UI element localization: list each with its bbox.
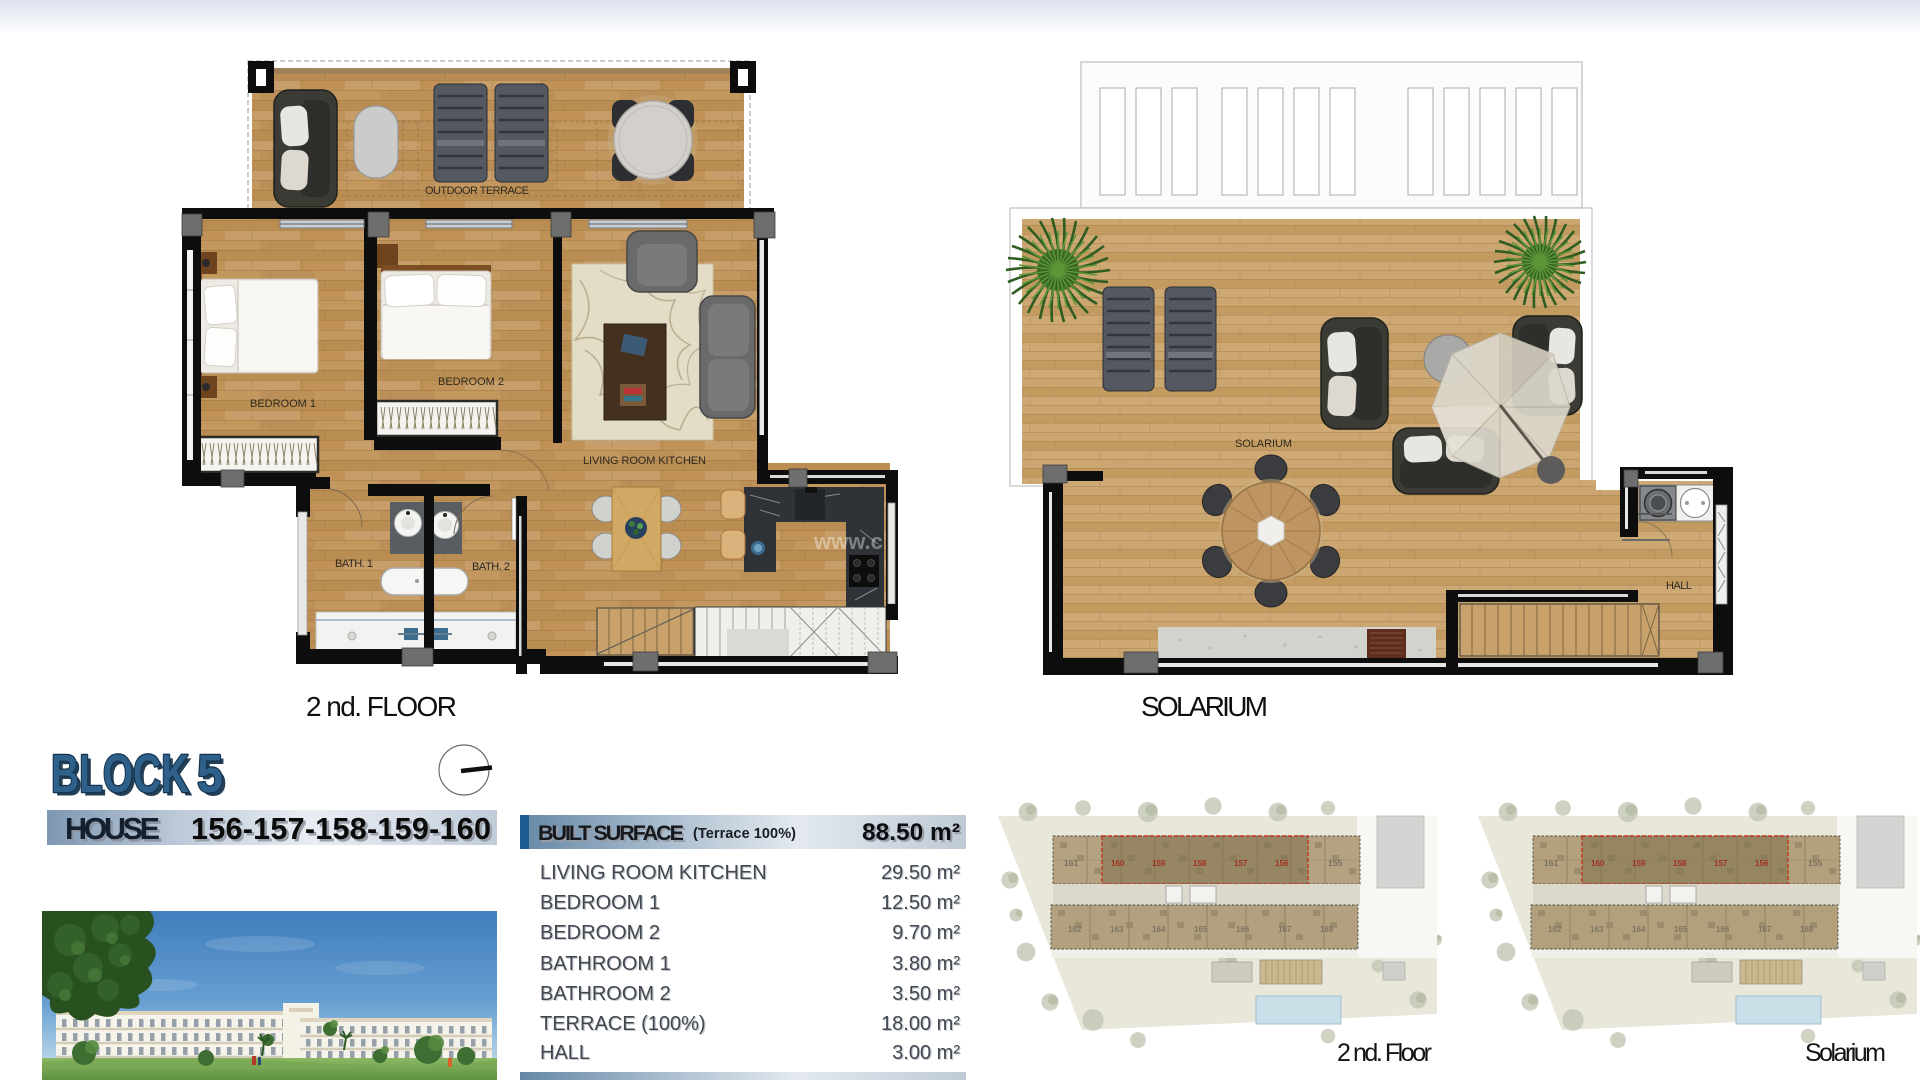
svg-text:LIVING ROOM KITCHEN: LIVING ROOM KITCHEN xyxy=(540,862,767,884)
svg-text:167: 167 xyxy=(1758,925,1772,934)
svg-text:Solarium: Solarium xyxy=(1805,1039,1886,1067)
svg-text:164: 164 xyxy=(1152,925,1166,934)
svg-text:158: 158 xyxy=(1193,859,1207,868)
svg-text:BUILT SURFACE: BUILT SURFACE xyxy=(538,821,684,845)
svg-text:OUTDOOR TERRACE: OUTDOOR TERRACE xyxy=(425,185,529,197)
svg-text:BLOCK: BLOCK xyxy=(51,743,189,804)
svg-text:160: 160 xyxy=(1591,859,1605,868)
svg-text:156: 156 xyxy=(1755,859,1769,868)
svg-text:155: 155 xyxy=(1808,858,1822,868)
svg-text:18.00 m²: 18.00 m² xyxy=(881,1013,960,1035)
svg-text:BEDROOM 2: BEDROOM 2 xyxy=(438,376,504,388)
svg-text:155: 155 xyxy=(1328,858,1342,868)
svg-text:BATH. 1: BATH. 1 xyxy=(335,558,373,570)
svg-text:165: 165 xyxy=(1194,925,1208,934)
svg-text:BEDROOM 1: BEDROOM 1 xyxy=(250,398,316,410)
svg-text:HOUSE: HOUSE xyxy=(65,812,160,846)
svg-text:160: 160 xyxy=(1111,859,1125,868)
svg-text:5: 5 xyxy=(197,743,223,804)
svg-text:168: 168 xyxy=(1320,925,1334,934)
svg-text:162: 162 xyxy=(1548,925,1562,934)
svg-text:3.00 m²: 3.00 m² xyxy=(892,1042,960,1064)
svg-text:166: 166 xyxy=(1716,925,1730,934)
svg-text:162: 162 xyxy=(1068,925,1082,934)
svg-text:HALL: HALL xyxy=(540,1042,590,1064)
svg-text:158: 158 xyxy=(1673,859,1687,868)
svg-text:BATHROOM 1: BATHROOM 1 xyxy=(540,953,671,975)
svg-text:163: 163 xyxy=(1590,925,1604,934)
svg-text:BEDROOM 1: BEDROOM 1 xyxy=(540,892,660,914)
svg-text:165: 165 xyxy=(1674,925,1688,934)
svg-text:159: 159 xyxy=(1632,859,1646,868)
svg-text:88.50 m²: 88.50 m² xyxy=(862,819,960,846)
svg-text:156-157-158-159-160: 156-157-158-159-160 xyxy=(191,812,491,846)
svg-text:3.80 m²: 3.80 m² xyxy=(892,953,960,975)
svg-text:161: 161 xyxy=(1064,858,1078,868)
svg-text:SOLARIUM: SOLARIUM xyxy=(1141,691,1268,722)
svg-text:156: 156 xyxy=(1275,859,1289,868)
svg-text:(Terrace 100%): (Terrace 100%) xyxy=(693,826,796,842)
svg-text:2 nd. FLOOR: 2 nd. FLOOR xyxy=(306,691,457,722)
svg-text:BATH. 2: BATH. 2 xyxy=(472,561,510,573)
svg-text:157: 157 xyxy=(1714,859,1728,868)
svg-text:LIVING ROOM KITCHEN: LIVING ROOM KITCHEN xyxy=(583,455,706,467)
svg-text:29.50 m²: 29.50 m² xyxy=(881,862,960,884)
svg-text:163: 163 xyxy=(1110,925,1124,934)
svg-text:167: 167 xyxy=(1278,925,1292,934)
svg-text:www.c: www.c xyxy=(813,529,883,554)
svg-text:157: 157 xyxy=(1234,859,1248,868)
svg-text:159: 159 xyxy=(1152,859,1166,868)
svg-text:3.50 m²: 3.50 m² xyxy=(892,983,960,1005)
svg-text:BEDROOM 2: BEDROOM 2 xyxy=(540,922,660,944)
svg-text:161: 161 xyxy=(1544,858,1558,868)
svg-text:SOLARIUM: SOLARIUM xyxy=(1235,438,1292,450)
svg-text:164: 164 xyxy=(1632,925,1646,934)
svg-text:HALL: HALL xyxy=(1666,580,1692,592)
svg-text:166: 166 xyxy=(1236,925,1250,934)
svg-text:12.50 m²: 12.50 m² xyxy=(881,892,960,914)
svg-text:168: 168 xyxy=(1800,925,1814,934)
svg-text:TERRACE (100%): TERRACE (100%) xyxy=(540,1013,706,1035)
svg-text:2 nd. Floor: 2 nd. Floor xyxy=(1337,1039,1432,1067)
svg-text:9.70 m²: 9.70 m² xyxy=(892,922,960,944)
svg-text:BATHROOM 2: BATHROOM 2 xyxy=(540,983,671,1005)
